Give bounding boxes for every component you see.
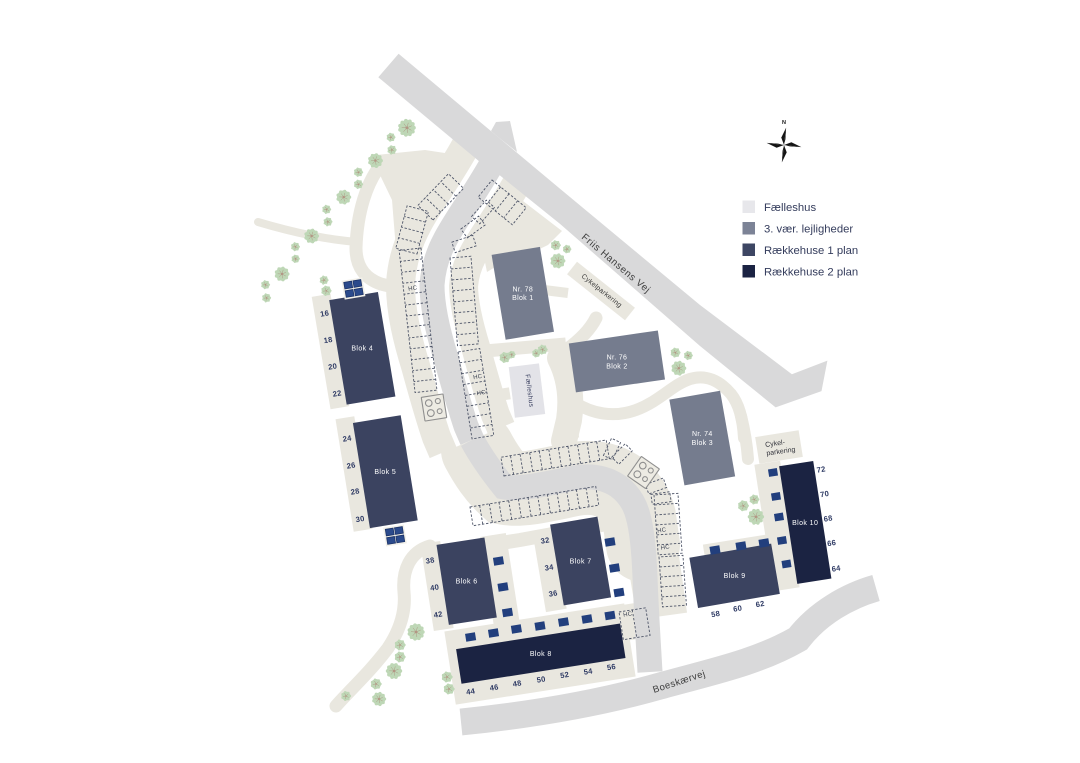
svg-text:Blok 3: Blok 3 <box>692 440 713 447</box>
svg-text:42: 42 <box>433 609 443 619</box>
svg-text:20: 20 <box>328 361 338 371</box>
svg-text:Blok 10: Blok 10 <box>792 520 818 527</box>
svg-text:68: 68 <box>823 513 833 523</box>
svg-text:3. vær. lejligheder: 3. vær. lejligheder <box>764 223 853 235</box>
svg-text:Blok 9: Blok 9 <box>724 573 746 580</box>
svg-text:32: 32 <box>540 535 550 545</box>
svg-text:52: 52 <box>560 670 570 680</box>
svg-text:Nr. 76: Nr. 76 <box>607 355 627 362</box>
svg-text:N: N <box>782 120 786 126</box>
svg-text:56: 56 <box>606 662 616 672</box>
svg-text:22: 22 <box>332 388 342 398</box>
svg-text:60: 60 <box>733 603 743 613</box>
svg-text:46: 46 <box>489 682 499 692</box>
svg-text:Blok 6: Blok 6 <box>456 579 478 586</box>
svg-text:38: 38 <box>425 555 435 565</box>
svg-text:50: 50 <box>536 674 546 684</box>
svg-text:62: 62 <box>755 599 765 609</box>
svg-text:Blok 2: Blok 2 <box>606 363 627 370</box>
svg-text:36: 36 <box>548 588 558 598</box>
svg-text:28: 28 <box>350 486 360 496</box>
svg-text:Blok 5: Blok 5 <box>374 469 396 476</box>
svg-text:Nr. 74: Nr. 74 <box>692 431 712 438</box>
svg-text:16: 16 <box>320 308 330 318</box>
svg-text:72: 72 <box>816 464 826 474</box>
svg-text:Blok 8: Blok 8 <box>530 651 552 658</box>
svg-text:40: 40 <box>430 582 440 592</box>
svg-text:Rækkehuse 2 plan: Rækkehuse 2 plan <box>764 266 858 278</box>
svg-text:70: 70 <box>820 489 830 499</box>
svg-text:58: 58 <box>711 609 721 619</box>
svg-text:Blok 7: Blok 7 <box>570 558 592 565</box>
svg-text:30: 30 <box>355 514 365 524</box>
svg-text:Fælleshus: Fælleshus <box>764 202 816 214</box>
svg-text:66: 66 <box>827 538 837 548</box>
svg-text:26: 26 <box>346 460 356 470</box>
svg-text:Rækkehuse 1 plan: Rækkehuse 1 plan <box>764 245 858 257</box>
svg-text:Blok 1: Blok 1 <box>512 295 533 302</box>
svg-text:48: 48 <box>512 678 522 688</box>
svg-text:18: 18 <box>323 335 333 345</box>
svg-text:Blok 4: Blok 4 <box>351 346 373 353</box>
svg-text:Nr. 78: Nr. 78 <box>513 286 533 293</box>
